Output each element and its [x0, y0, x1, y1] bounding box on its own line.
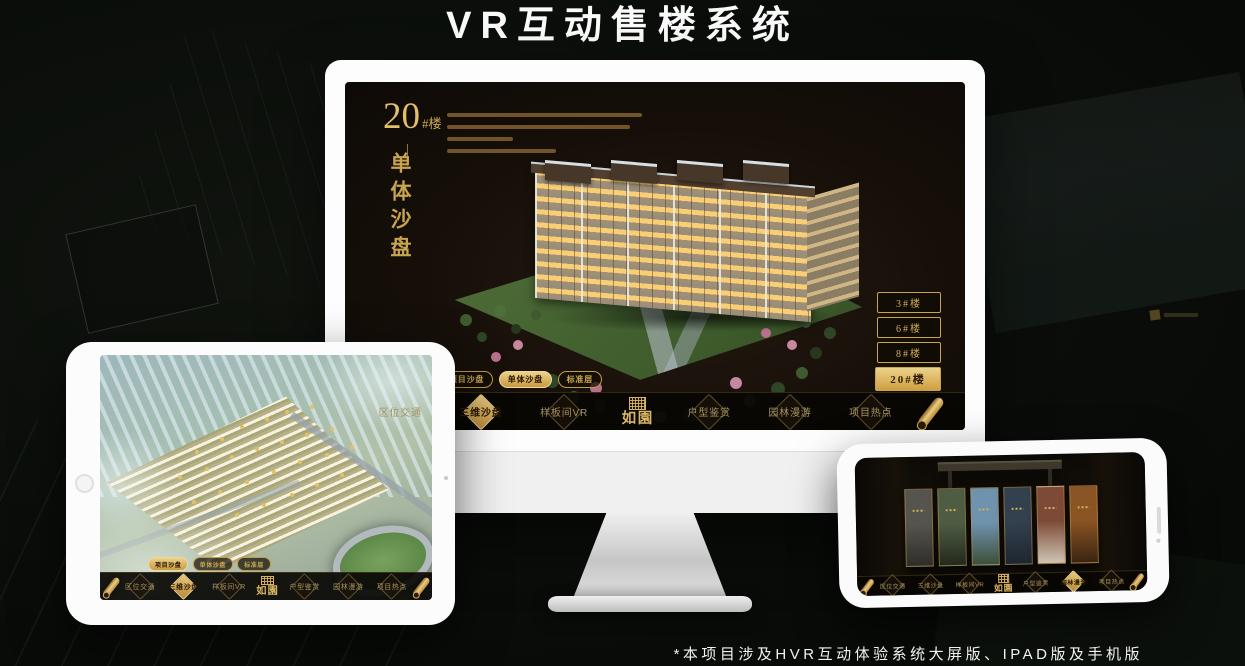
nav-item-户型鉴赏[interactable]: 户型鉴赏	[287, 582, 323, 592]
nav-item-户型鉴赏[interactable]: 户型鉴赏	[684, 404, 735, 419]
building-number-suffix: #楼	[422, 116, 442, 131]
nav-item-label: 三维沙盘	[169, 582, 199, 592]
building-headline: 20#楼	[383, 98, 442, 135]
nav-item-label: 样板间VR	[540, 404, 588, 419]
description-line	[447, 149, 556, 153]
nav-item-label: 园林漫游	[1061, 577, 1087, 587]
poster-caption	[1011, 507, 1023, 509]
description-line	[447, 113, 642, 117]
nav-item-label: 户型鉴赏	[1023, 578, 1049, 588]
monitor-stand-neck	[572, 513, 728, 601]
building-side-face	[807, 183, 859, 312]
poster-caption	[912, 509, 924, 511]
nav-item-区位交通[interactable]: 区位交通	[375, 404, 426, 419]
nav-item-样板间VR[interactable]: 样板间VR	[953, 579, 987, 589]
roof-cap	[545, 160, 591, 184]
scroll-icon[interactable]	[860, 577, 875, 595]
seal-icon	[998, 574, 1009, 583]
nav-item-label: 项目热点	[377, 582, 407, 592]
tablet-screen: 项目沙盘单体沙盘标准层 区位交通三维沙盘样板间VR如園户型鉴赏园林漫游项目热点	[100, 355, 432, 600]
nav-item-园林漫游[interactable]: 园林漫游	[764, 404, 815, 419]
nav-item-园林漫游[interactable]: 园林漫游	[1058, 577, 1089, 587]
poster-caption	[1044, 507, 1056, 509]
gallery-poster-row	[855, 484, 1147, 568]
nav-item-区位交通[interactable]: 区位交通	[122, 582, 158, 592]
building-number-badges[interactable]	[100, 355, 104, 359]
phone-camera	[1156, 539, 1160, 543]
nav-item-label: 样板间VR	[212, 582, 246, 592]
background-brand-mark	[1149, 309, 1160, 320]
nav-item-label: 区位交通	[379, 404, 422, 419]
page-title: VR互动售楼系统	[0, 2, 1245, 50]
nav-item-label: 户型鉴赏	[688, 404, 731, 419]
poster-caption	[1077, 506, 1089, 508]
view-tab-标准层[interactable]: 标准层	[237, 557, 271, 571]
view-tab-标准层[interactable]: 标准层	[558, 371, 602, 388]
scroll-icon[interactable]	[102, 576, 121, 597]
tablet-navbar: 区位交通三维沙盘样板间VR如園户型鉴赏园林漫游项目热点	[100, 572, 432, 600]
seal-icon	[261, 576, 274, 586]
nav-item-三维沙盘[interactable]: 三维沙盘	[915, 580, 946, 590]
floor-button-6#楼[interactable]: 6#楼	[877, 317, 941, 338]
background-plaque	[65, 204, 219, 334]
nav-item-三维沙盘[interactable]: 三维沙盘	[166, 582, 202, 592]
vertical-section-title: 单体沙盘	[385, 152, 415, 264]
roof-cap	[611, 160, 657, 184]
scroll-icon[interactable]	[412, 576, 431, 597]
description-line	[447, 125, 630, 129]
nav-item-label: 三维沙盘	[918, 580, 944, 590]
nav-item-三维沙盘[interactable]: 三维沙盘	[455, 404, 506, 419]
floor-button-20#楼[interactable]: 20#楼	[875, 367, 941, 391]
brand-logo: 如園	[994, 574, 1014, 593]
brand-logo-text: 如園	[994, 584, 1014, 593]
nav-item-label: 区位交通	[880, 581, 906, 591]
phone-mockup: 区位交通三维沙盘样板间VR如園户型鉴赏园林漫游项目热点	[836, 438, 1169, 609]
brand-logo-text: 如園	[622, 412, 654, 427]
phone-speaker-slot	[1157, 507, 1162, 534]
tablet-mockup: 项目沙盘单体沙盘标准层 区位交通三维沙盘样板间VR如園户型鉴赏园林漫游项目热点	[66, 342, 455, 625]
nav-item-label: 园林漫游	[768, 404, 811, 419]
brand-logo: 如園	[622, 397, 654, 427]
gallery-poster-6[interactable]	[1069, 485, 1099, 564]
roof-cap	[677, 160, 723, 184]
nav-item-label: 样板间VR	[955, 579, 984, 589]
phone-screen: 区位交通三维沙盘样板间VR如園户型鉴赏园林漫游项目热点	[855, 452, 1148, 596]
scroll-icon[interactable]	[1129, 572, 1144, 590]
floor-button-8#楼[interactable]: 8#楼	[877, 342, 941, 363]
poster-caption	[978, 508, 990, 510]
gallery-poster-4[interactable]	[1003, 486, 1033, 565]
nav-item-项目热点[interactable]: 项目热点	[1096, 576, 1127, 586]
background-aerial-band	[958, 72, 1245, 333]
nav-item-label: 区位交通	[125, 582, 155, 592]
gallery-poster-3[interactable]	[970, 487, 1000, 566]
gallery-poster-1[interactable]	[904, 488, 934, 567]
nav-item-区位交通[interactable]: 区位交通	[877, 581, 908, 591]
brand-logo: 如園	[256, 576, 279, 598]
view-tab-group: 项目沙盘单体沙盘标准层	[148, 557, 275, 571]
scroll-icon[interactable]	[916, 395, 944, 428]
poster-caption	[945, 509, 957, 511]
courtyard-gate	[938, 460, 1062, 472]
nav-item-园林漫游[interactable]: 园林漫游	[330, 582, 366, 592]
footnote: *本项目涉及HVR互动体验系统大屏版、IPAD版及手机版	[674, 643, 1143, 664]
description-block	[447, 113, 642, 161]
nav-item-label: 户型鉴赏	[290, 582, 320, 592]
gallery-poster-5[interactable]	[1036, 486, 1066, 565]
nav-item-label: 园林漫游	[333, 582, 363, 592]
building-number: 20	[383, 96, 420, 137]
poster-canvas: VR互动售楼系统 20#楼 单体沙盘 3#楼6#楼8#	[0, 0, 1245, 666]
nav-item-户型鉴赏[interactable]: 户型鉴赏	[1020, 578, 1051, 588]
view-tab-group: 项目沙盘单体沙盘标准层	[440, 371, 608, 388]
nav-item-label: 项目热点	[1099, 576, 1125, 586]
floor-button-group: 3#楼6#楼8#楼20#楼	[875, 292, 941, 391]
description-line	[447, 137, 513, 141]
tablet-home-button[interactable]	[75, 474, 94, 493]
brand-logo-text: 如園	[256, 587, 279, 597]
seal-icon	[629, 397, 646, 410]
nav-item-项目热点[interactable]: 项目热点	[845, 404, 896, 419]
nav-item-label: 三维沙盘	[459, 404, 502, 419]
nav-item-样板间VR[interactable]: 样板间VR	[536, 404, 592, 419]
monitor-stand-base	[548, 596, 752, 612]
view-tab-单体沙盘[interactable]: 单体沙盘	[193, 557, 233, 571]
gallery-poster-2[interactable]	[937, 488, 967, 567]
roof-cap	[743, 160, 789, 184]
tablet-camera	[444, 476, 448, 480]
view-tab-单体沙盘[interactable]: 单体沙盘	[499, 371, 552, 388]
nav-item-项目热点[interactable]: 项目热点	[374, 582, 410, 592]
background-brand-text	[1164, 313, 1198, 317]
sandbox-trees	[345, 82, 351, 88]
floor-button-3#楼[interactable]: 3#楼	[877, 292, 941, 313]
view-tab-项目沙盘[interactable]: 项目沙盘	[148, 557, 188, 571]
nav-item-label: 项目热点	[849, 404, 892, 419]
nav-item-样板间VR[interactable]: 样板间VR	[209, 582, 248, 592]
